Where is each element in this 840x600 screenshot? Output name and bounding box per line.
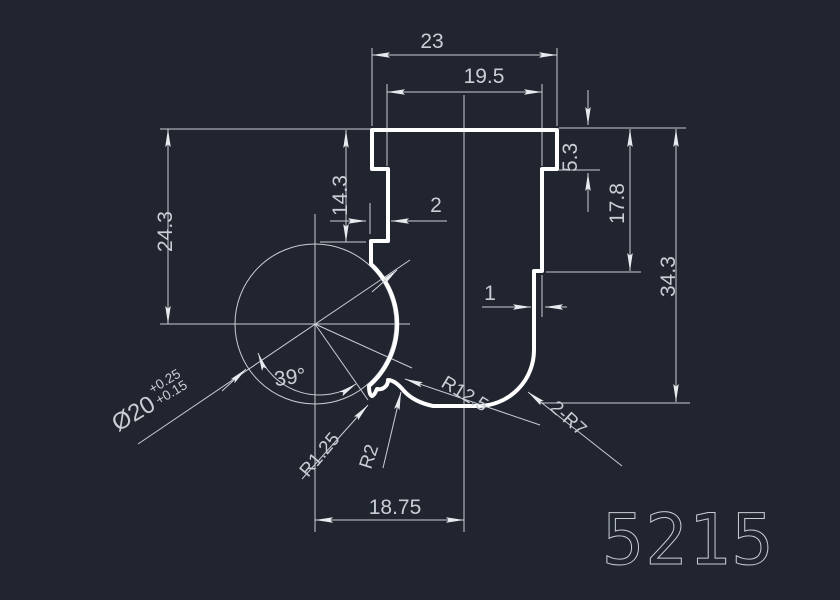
dim-39deg-text: 39° [273,364,308,391]
radius-r12.5-text: R12.5 [437,372,491,416]
radial-lines [138,260,412,444]
diameter-leader-line [138,260,410,444]
dim-34.3-text: 34.3 [657,256,680,297]
dim-2-text: 2 [430,194,442,217]
dim-1-text: 1 [484,282,496,305]
dim-18.75-text: 18.75 [369,496,422,519]
extension-lines [160,48,690,532]
cad-canvas: 23 19.5 5.3 17.8 34.3 24.3 14.3 2 1 18.7… [0,0,840,600]
dim-5.3-text: 5.3 [559,143,582,172]
dim-19.5-text: 19.5 [464,65,505,88]
radius-2-r7-text: 2-R7 [546,397,591,440]
radius-r2-text: R2 [356,442,383,472]
radius-r1.25-text: R1.25 [296,429,345,481]
part-number: 5215 [602,499,775,581]
diameter-text: Ø20 [107,391,160,438]
dim-17.8-text: 17.8 [606,183,629,224]
leader-r2 [383,392,401,468]
cad-drawing: 23 19.5 5.3 17.8 34.3 24.3 14.3 2 1 18.7… [0,0,840,600]
profile-outline [369,130,557,406]
dim-24.3-text: 24.3 [154,211,177,252]
dim-14.3-text: 14.3 [329,175,352,216]
dim-23-text: 23 [420,30,443,53]
diameter-label-group: Ø20 +0.25 +0.15 [104,366,192,437]
